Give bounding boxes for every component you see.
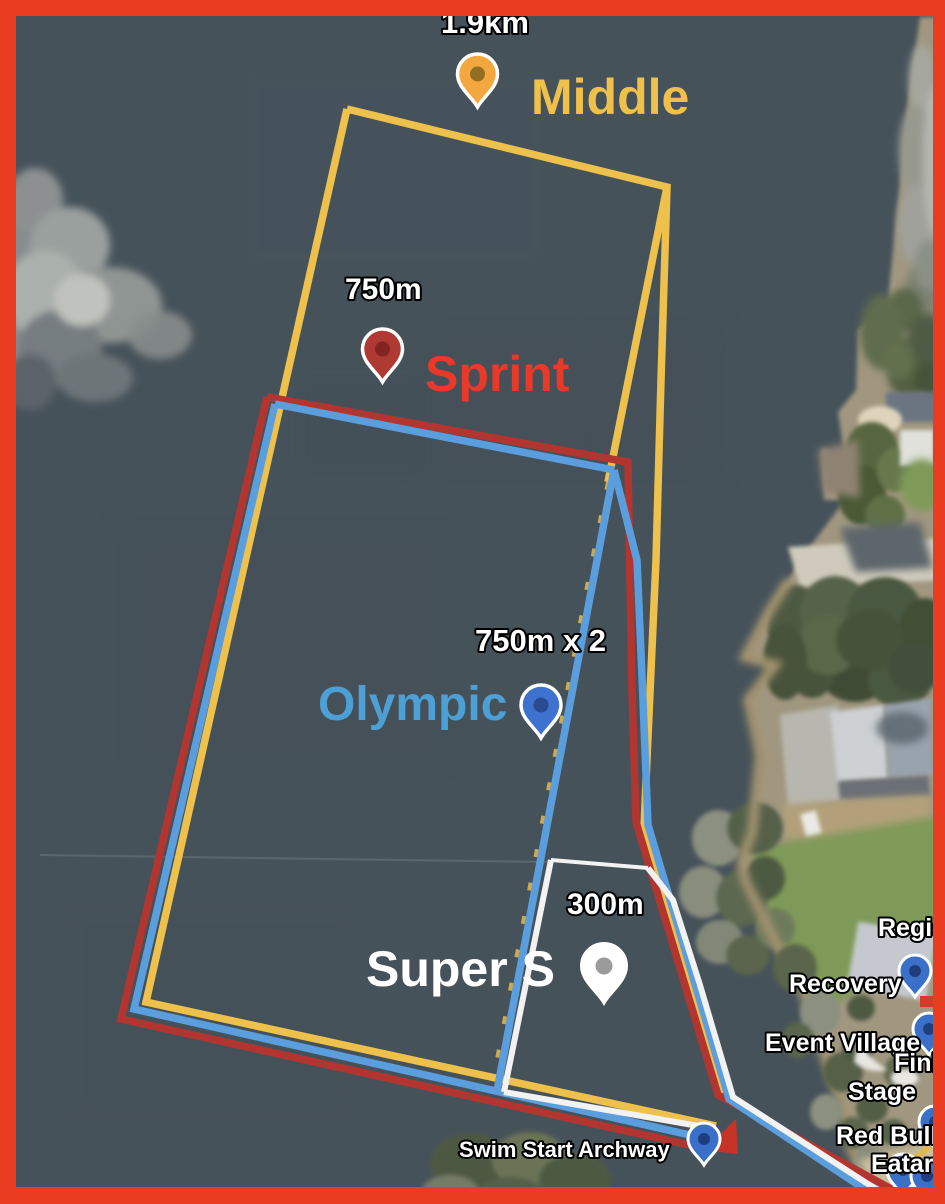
- svg-text:Swim Start Archway: Swim Start Archway: [459, 1137, 670, 1162]
- svg-text:300m: 300m: [567, 888, 644, 921]
- svg-text:Red Bull E: Red Bull E: [836, 1122, 945, 1150]
- svg-text:Sprint: Sprint: [425, 346, 570, 402]
- svg-text:Stage: Stage: [848, 1078, 916, 1106]
- svg-text:750m: 750m: [345, 273, 422, 306]
- svg-text:Recovery: Recovery: [789, 970, 902, 998]
- svg-text:Super S: Super S: [366, 941, 555, 997]
- svg-text:Middle: Middle: [531, 69, 689, 125]
- svg-text:Olympic: Olympic: [318, 678, 507, 731]
- svg-text:750m x 2: 750m x 2: [475, 623, 606, 658]
